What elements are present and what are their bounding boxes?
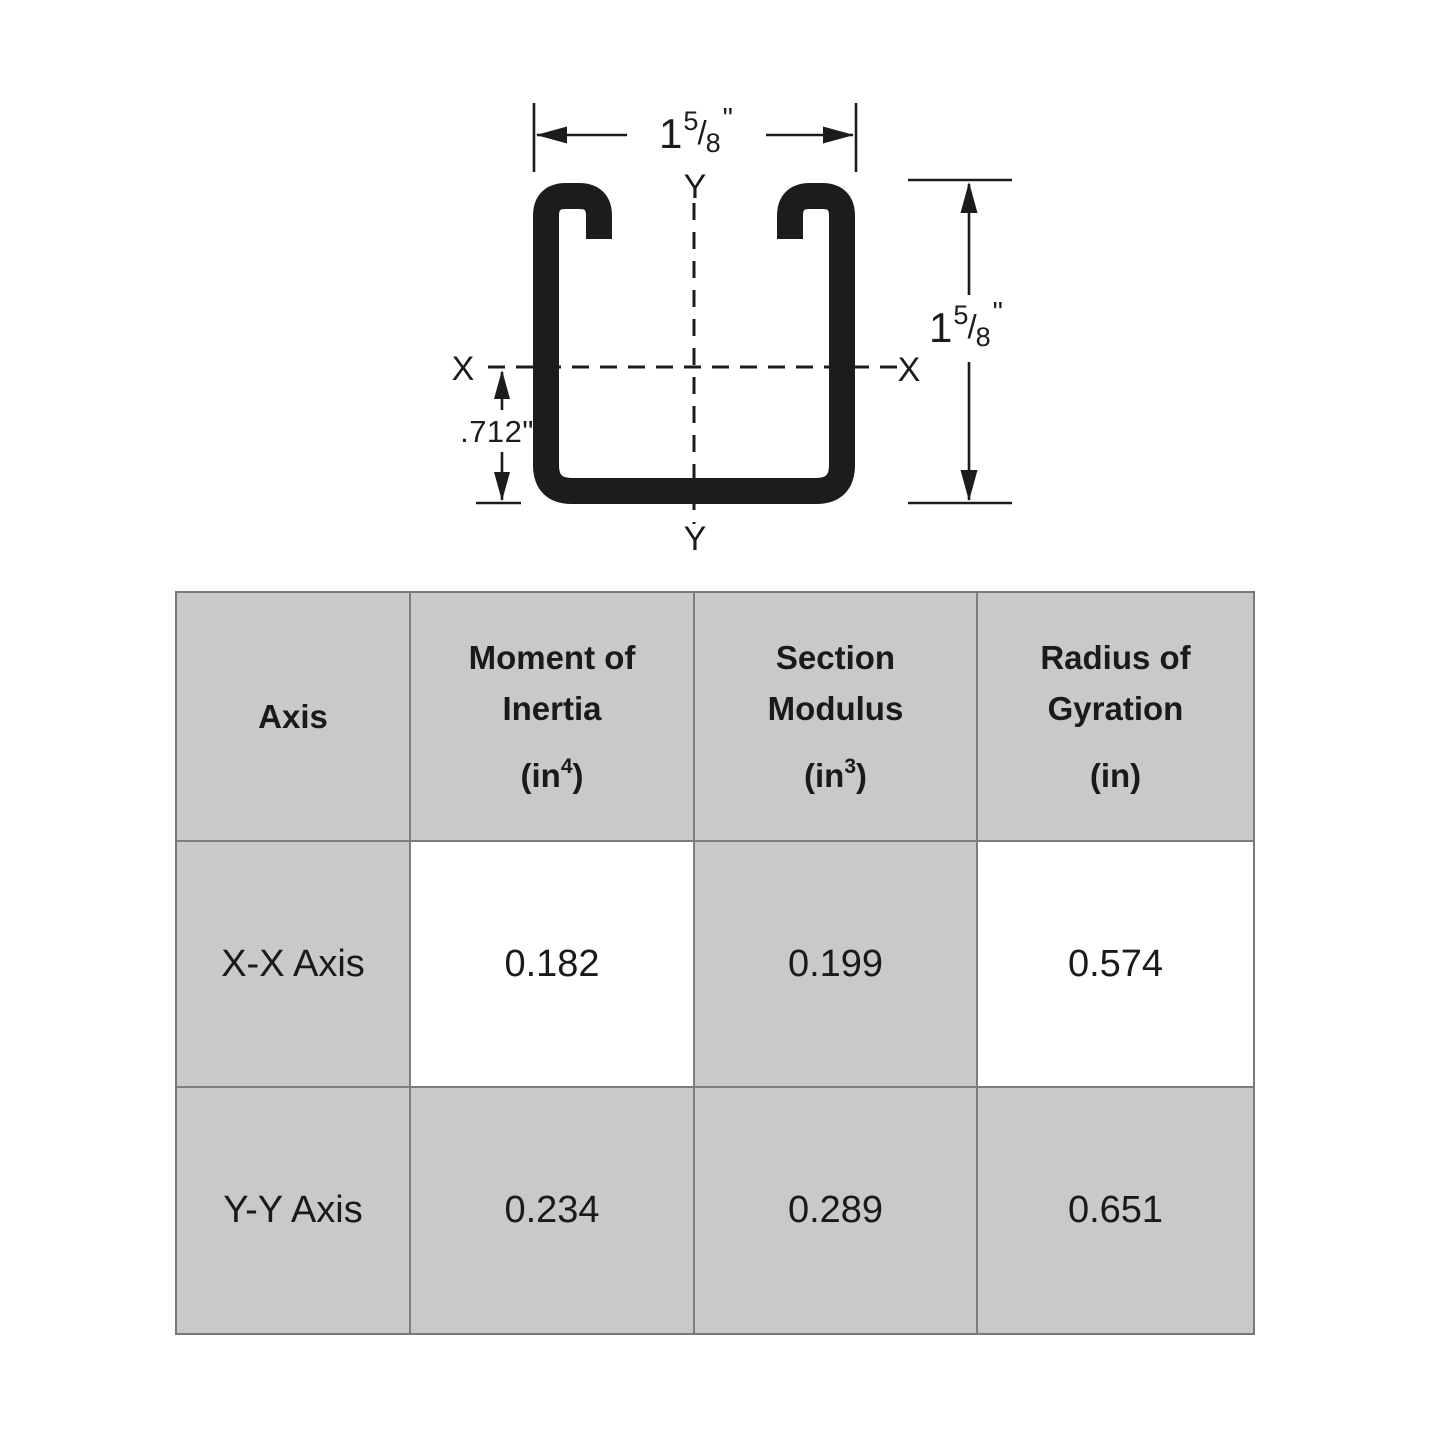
header-moment-of-inertia: Moment of Inertia (in4) [411, 593, 695, 842]
cell-yy-section: 0.289 [695, 1088, 978, 1333]
header-section-modulus: Section Modulus (in3) [695, 593, 978, 842]
arrow-up-icon [494, 370, 510, 399]
section-properties-table: Axis Moment of Inertia (in4) Section Mod… [175, 591, 1255, 1335]
strut-channel-spec-sheet: 15/8" 15/8" .712" X X Y Y Axis Moment of… [0, 0, 1445, 1445]
arrow-down-icon [494, 472, 510, 501]
cell-xx-radius: 0.574 [978, 842, 1253, 1088]
channel-cross-section-diagram [420, 85, 1040, 575]
cell-yy-radius: 0.651 [978, 1088, 1253, 1333]
unit-in3: (in3) [804, 758, 867, 792]
unit-in: (in) [1090, 758, 1141, 792]
cell-yy-axis: Y-Y Axis [177, 1088, 411, 1333]
header-axis: Axis [177, 593, 411, 842]
cell-xx-section: 0.199 [695, 842, 978, 1088]
header-radius-of-gyration: Radius of Gyration (in) [978, 593, 1253, 842]
arrow-left-icon [536, 127, 567, 144]
arrow-up-icon [961, 182, 978, 213]
arrow-down-icon [961, 470, 978, 501]
cell-xx-moment: 0.182 [411, 842, 695, 1088]
cell-xx-axis: X-X Axis [177, 842, 411, 1088]
arrow-right-icon [823, 127, 854, 144]
cell-yy-moment: 0.234 [411, 1088, 695, 1333]
unit-in4: (in4) [520, 758, 583, 792]
